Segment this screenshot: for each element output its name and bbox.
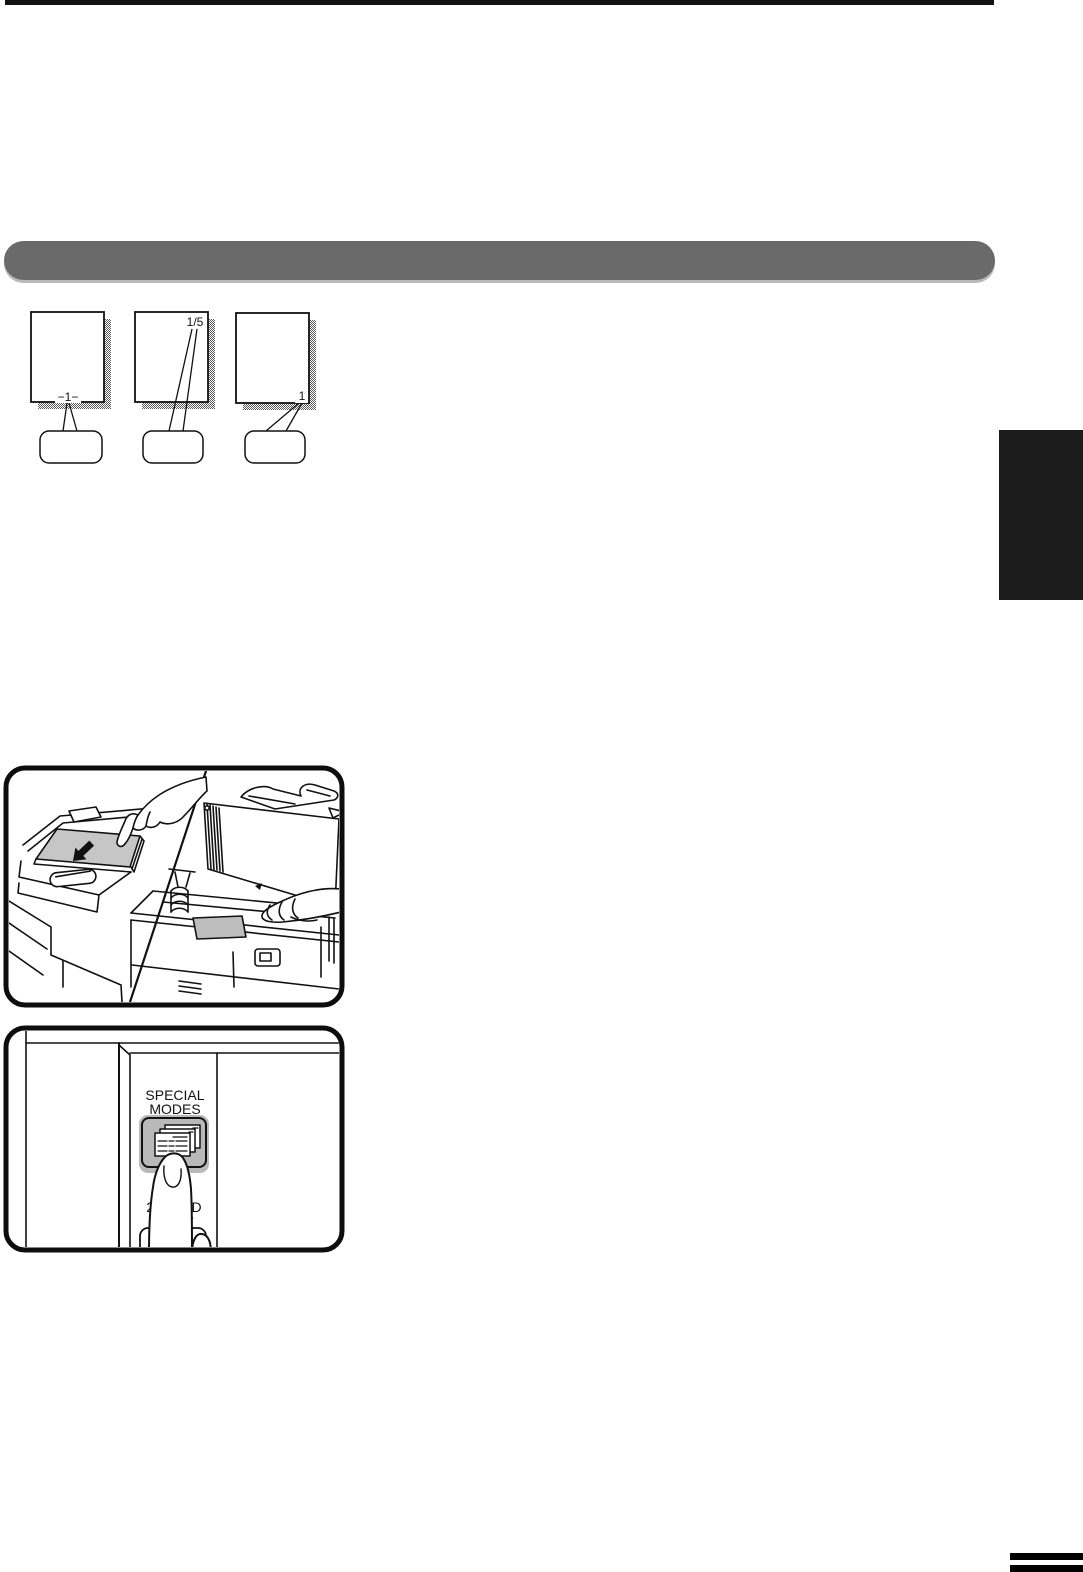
chapter-side-tab — [999, 430, 1083, 600]
stacked-sheets-icon — [155, 1125, 200, 1156]
callout-box-1 — [40, 431, 102, 463]
machine-body-lines — [9, 901, 122, 1002]
tray-handle — [49, 869, 96, 888]
page-number-top-right: 1/5 — [187, 315, 204, 329]
original-on-glass — [193, 916, 246, 939]
lid-spring-hinge — [169, 869, 195, 912]
document-feeder-scene — [9, 777, 207, 1002]
special-modes-panel-illustration: SPECIAL MODES 2-SIDED COPY — [3, 1025, 345, 1253]
section-heading-bar — [4, 241, 995, 280]
footer-mark-top — [1010, 1553, 1083, 1560]
page-numbering-illustration: −1− 1/5 1 — [20, 300, 320, 470]
vent-slats — [179, 981, 201, 994]
callout-box-3 — [245, 431, 305, 463]
footer-mark-bottom — [1010, 1565, 1083, 1572]
manual-page: −1− 1/5 1 — [0, 0, 1083, 1572]
callout-box-2 — [143, 431, 203, 463]
document-loading-illustration — [3, 765, 345, 1008]
page-number-bottom-right: 1 — [299, 389, 306, 403]
page-example-1 — [31, 312, 104, 402]
top-rule — [5, 0, 994, 5]
page-number-bottom-center: −1− — [58, 390, 79, 404]
special-modes-label-line2: MODES — [149, 1101, 200, 1117]
